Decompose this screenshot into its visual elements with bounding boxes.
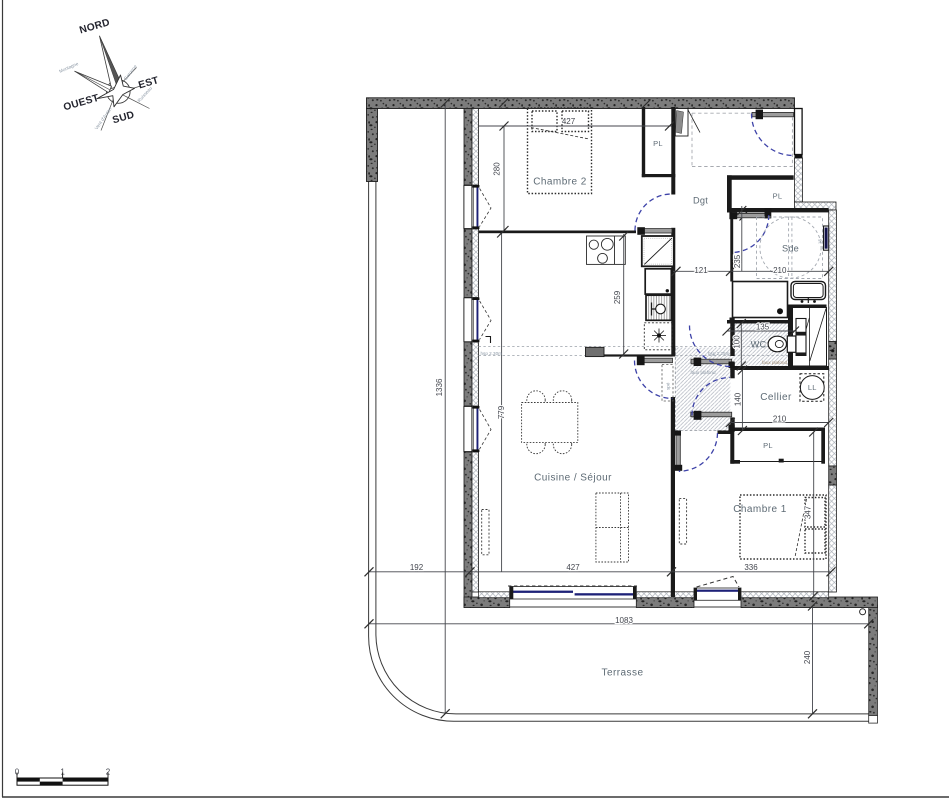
svg-text:210: 210 xyxy=(773,266,787,275)
svg-text:LL: LL xyxy=(808,383,817,392)
svg-text:240: 240 xyxy=(803,650,812,664)
svg-text:1083: 1083 xyxy=(615,616,633,625)
svg-text:140: 140 xyxy=(734,392,743,406)
svg-text:259: 259 xyxy=(613,290,622,304)
svg-text:Terrasse: Terrasse xyxy=(602,668,644,679)
svg-text:PL: PL xyxy=(773,192,783,201)
svg-text:427: 427 xyxy=(562,117,576,126)
svg-text:Cellier: Cellier xyxy=(760,392,792,403)
svg-text:15: 15 xyxy=(818,239,823,245)
svg-text:spé: spé xyxy=(666,382,671,390)
svg-text:hsp 2.25m: hsp 2.25m xyxy=(708,351,730,356)
svg-text:280: 280 xyxy=(493,162,502,176)
svg-text:779: 779 xyxy=(497,405,506,419)
svg-text:336: 336 xyxy=(744,563,758,572)
svg-text:Chambre 2: Chambre 2 xyxy=(533,177,587,188)
svg-text:PL: PL xyxy=(763,441,773,450)
svg-text:PL: PL xyxy=(653,139,663,148)
svg-text:235: 235 xyxy=(733,254,742,268)
svg-text:121: 121 xyxy=(694,266,708,275)
svg-text:Sde: Sde xyxy=(782,244,799,254)
svg-text:100: 100 xyxy=(733,335,742,349)
svg-text:347: 347 xyxy=(804,505,813,519)
svg-text:hsp 2.30m: hsp 2.30m xyxy=(481,351,503,356)
svg-text:WC: WC xyxy=(751,340,767,350)
svg-text:faux plafond: faux plafond xyxy=(691,370,716,375)
svg-text:192: 192 xyxy=(410,563,424,572)
svg-text:faux plafond: faux plafond xyxy=(762,360,787,365)
svg-text:Chambre 1: Chambre 1 xyxy=(733,504,787,515)
svg-text:210: 210 xyxy=(773,415,787,424)
svg-text:Cuisine / Séjour: Cuisine / Séjour xyxy=(534,473,612,484)
svg-text:1336: 1336 xyxy=(435,378,444,396)
svg-text:427: 427 xyxy=(566,563,580,572)
svg-text:Dgt: Dgt xyxy=(693,196,708,206)
svg-text:135: 135 xyxy=(756,323,770,332)
